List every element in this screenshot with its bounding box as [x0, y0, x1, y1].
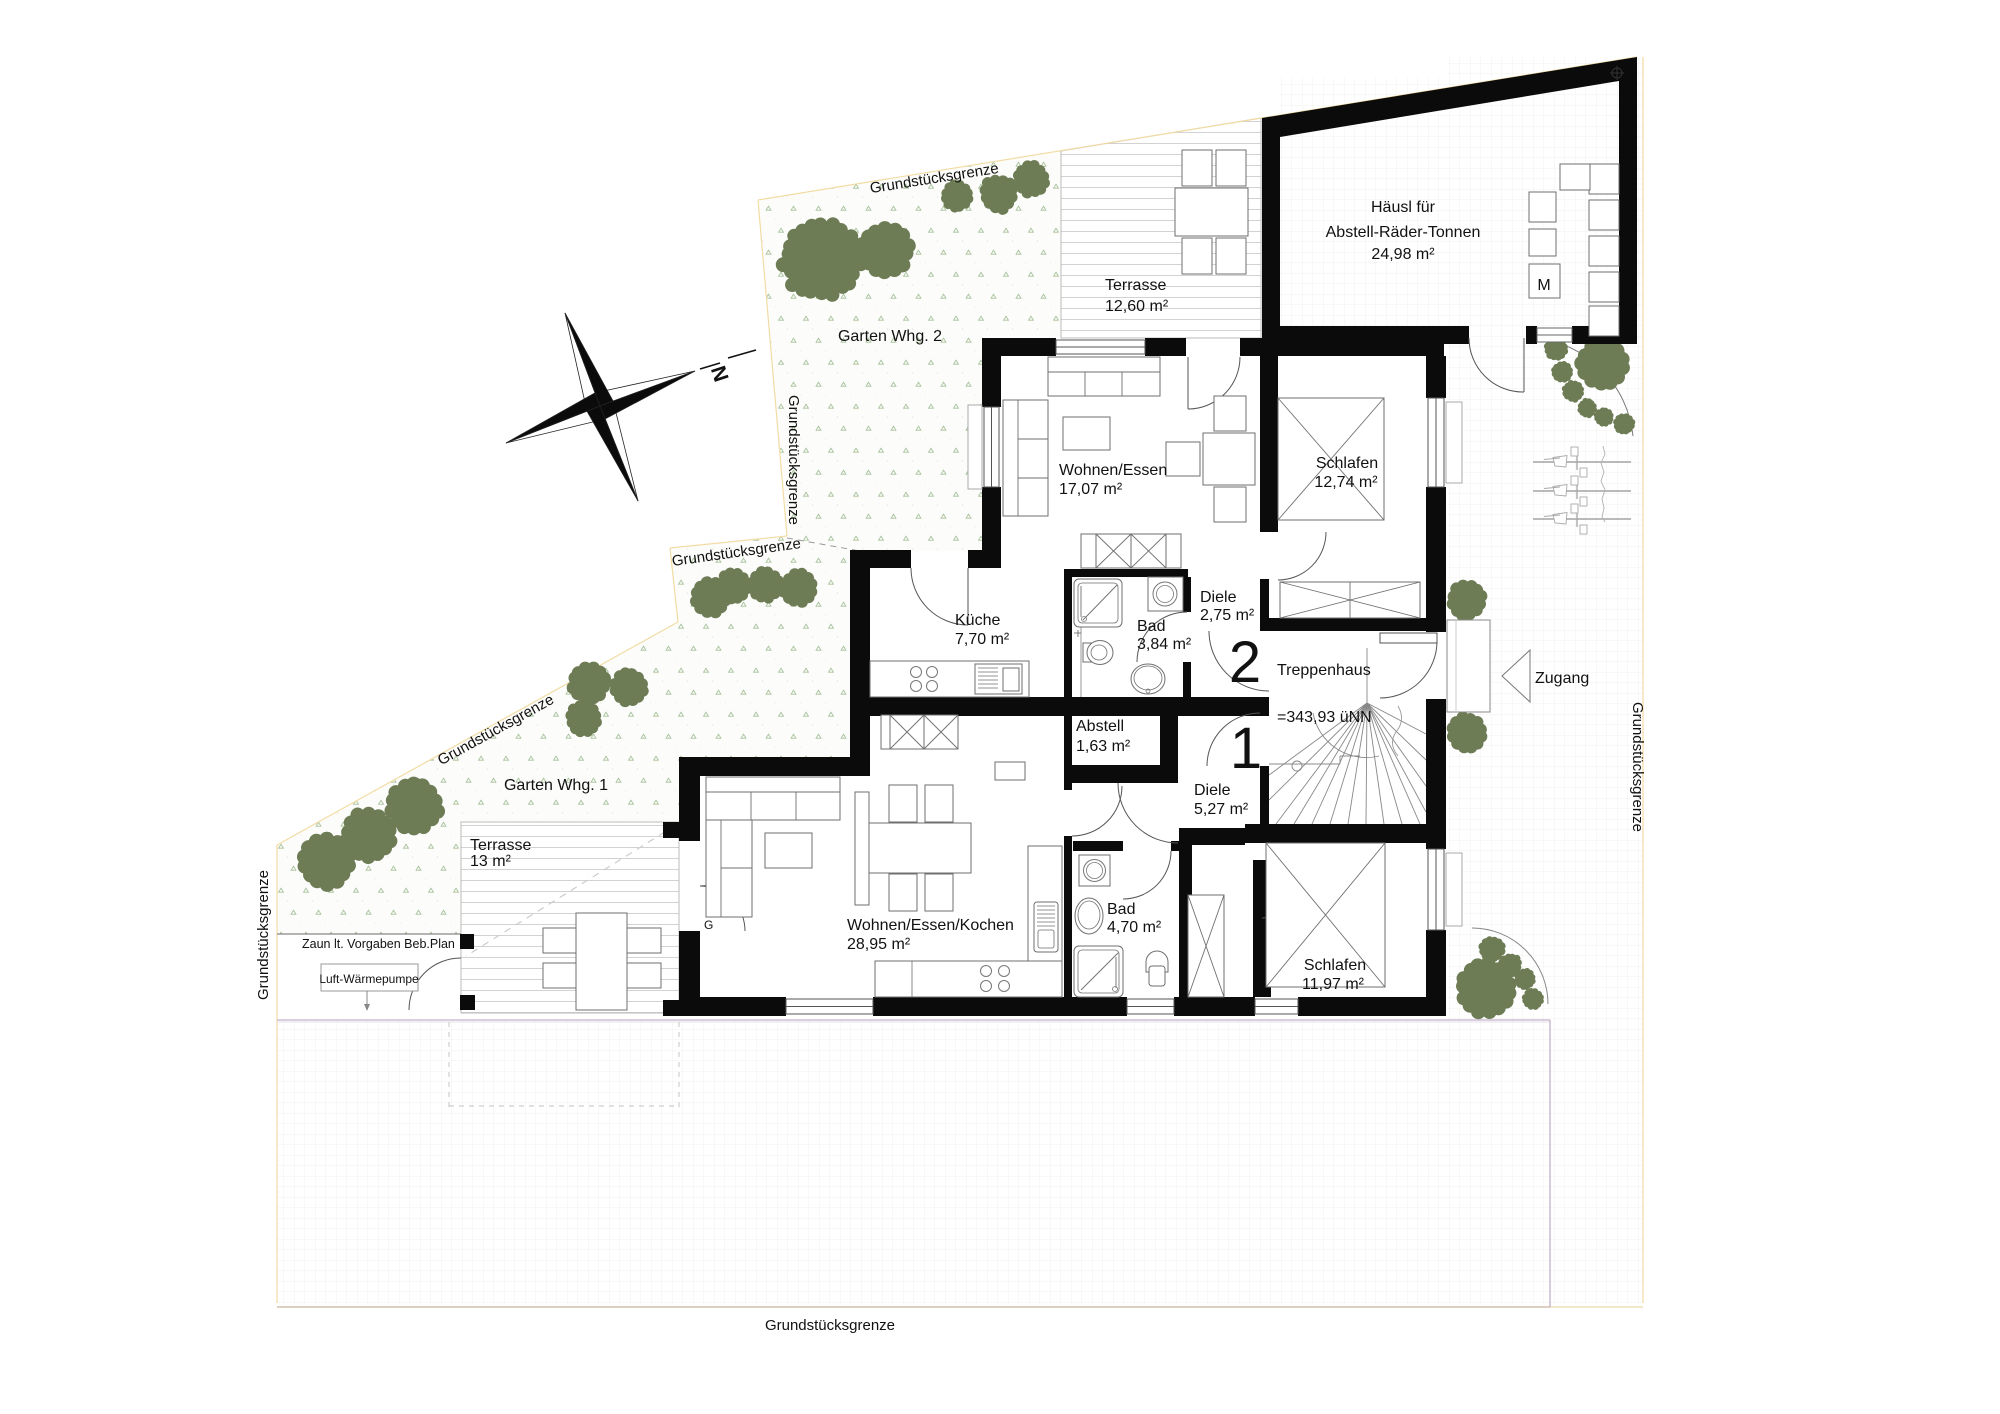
- svg-text:17,07 m²: 17,07 m²: [1059, 481, 1123, 498]
- svg-text:Garten Whg. 1: Garten Whg. 1: [504, 777, 608, 794]
- svg-text:Terrasse: Terrasse: [470, 837, 531, 854]
- svg-text:12,60 m²: 12,60 m²: [1105, 298, 1169, 315]
- svg-text:2,75 m²: 2,75 m²: [1200, 607, 1255, 624]
- svg-text:Abstell: Abstell: [1076, 718, 1124, 735]
- svg-text:1,63 m²: 1,63 m²: [1076, 738, 1131, 755]
- svg-text:4,70 m²: 4,70 m²: [1107, 919, 1162, 936]
- svg-text:24,98 m²: 24,98 m²: [1371, 246, 1435, 263]
- svg-text:Treppenhaus: Treppenhaus: [1277, 662, 1371, 679]
- svg-text:11,97 m²: 11,97 m²: [1302, 976, 1365, 993]
- svg-text:Küche: Küche: [955, 612, 1000, 629]
- svg-text:Bad: Bad: [1107, 901, 1135, 918]
- svg-text:Zugang: Zugang: [1535, 670, 1589, 687]
- svg-text:Diele: Diele: [1194, 782, 1231, 799]
- svg-text:1: 1: [1230, 716, 1262, 781]
- svg-text:Grundstücksgrenze: Grundstücksgrenze: [1629, 702, 1646, 832]
- svg-text:Terrasse: Terrasse: [1105, 277, 1166, 294]
- svg-text:5,27 m²: 5,27 m²: [1194, 801, 1249, 818]
- svg-text:Diele: Diele: [1200, 589, 1237, 606]
- svg-text:G: G: [704, 918, 713, 932]
- svg-text:2: 2: [1229, 630, 1261, 695]
- svg-text:Grundstücksgrenze: Grundstücksgrenze: [765, 1317, 895, 1334]
- svg-text:Häusl für: Häusl für: [1371, 199, 1436, 216]
- svg-text:Grundstücksgrenze: Grundstücksgrenze: [785, 395, 802, 525]
- svg-text:Wohnen/Essen: Wohnen/Essen: [1059, 462, 1167, 479]
- svg-text:12,74 m²: 12,74 m²: [1314, 474, 1378, 491]
- svg-text:13 m²: 13 m²: [470, 853, 512, 870]
- svg-text:Wohnen/Essen/Kochen: Wohnen/Essen/Kochen: [847, 917, 1014, 934]
- svg-text:Bad: Bad: [1137, 618, 1165, 635]
- svg-text:Luft-Wärmepumpe: Luft-Wärmepumpe: [319, 972, 419, 986]
- svg-text:3,84 m²: 3,84 m²: [1137, 636, 1192, 653]
- svg-text:28,95 m²: 28,95 m²: [847, 936, 911, 953]
- svg-text:=343,93 üNN: =343,93 üNN: [1277, 709, 1372, 726]
- svg-text:Garten Whg. 2: Garten Whg. 2: [838, 328, 942, 345]
- svg-text:Schlafen: Schlafen: [1316, 455, 1378, 472]
- svg-text:M: M: [1537, 277, 1550, 294]
- svg-text:Schlafen: Schlafen: [1304, 957, 1366, 974]
- svg-text:Grundstücksgrenze: Grundstücksgrenze: [255, 870, 272, 1000]
- svg-text:7,70 m²: 7,70 m²: [955, 631, 1010, 648]
- svg-text:Zaun lt. Vorgaben Beb.Plan: Zaun lt. Vorgaben Beb.Plan: [302, 937, 455, 951]
- svg-text:Abstell-Räder-Tonnen: Abstell-Räder-Tonnen: [1326, 224, 1481, 241]
